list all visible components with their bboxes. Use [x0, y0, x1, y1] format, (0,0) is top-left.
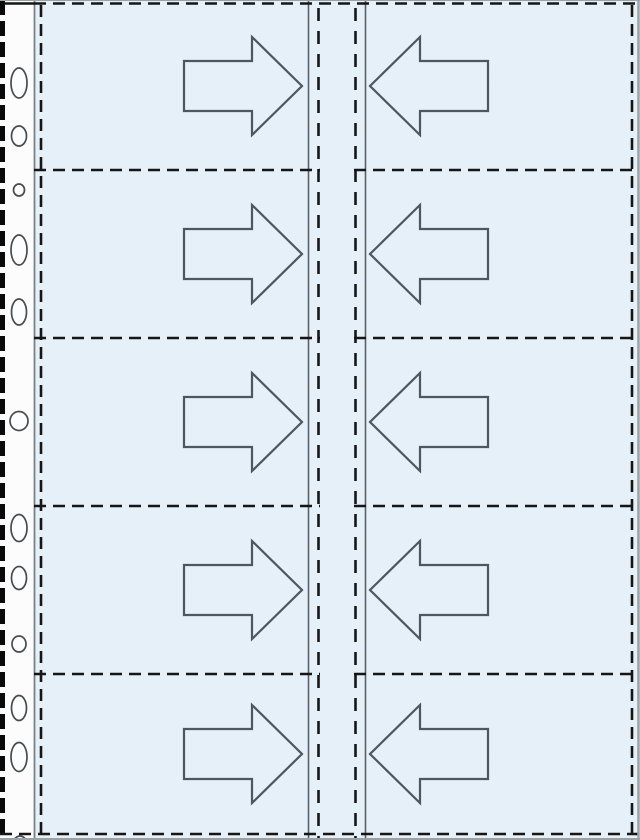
punch-hole-1 [11, 68, 27, 98]
punch-hole-11 [11, 743, 27, 772]
binder-pocket-sheet-diagram [0, 0, 640, 840]
punch-hole-7 [11, 515, 27, 542]
punch-hole-3 [14, 184, 25, 196]
punch-hole-6 [10, 412, 28, 431]
punch-hole-8 [12, 567, 27, 590]
binder-pocket-page [0, 0, 640, 840]
punch-hole-2 [12, 126, 27, 146]
punch-hole-9 [12, 636, 26, 652]
pocket-sheet-body [34, 1, 638, 839]
punch-hole-5 [12, 299, 27, 325]
punch-hole-4 [11, 235, 27, 265]
punch-hole-10 [12, 696, 27, 721]
